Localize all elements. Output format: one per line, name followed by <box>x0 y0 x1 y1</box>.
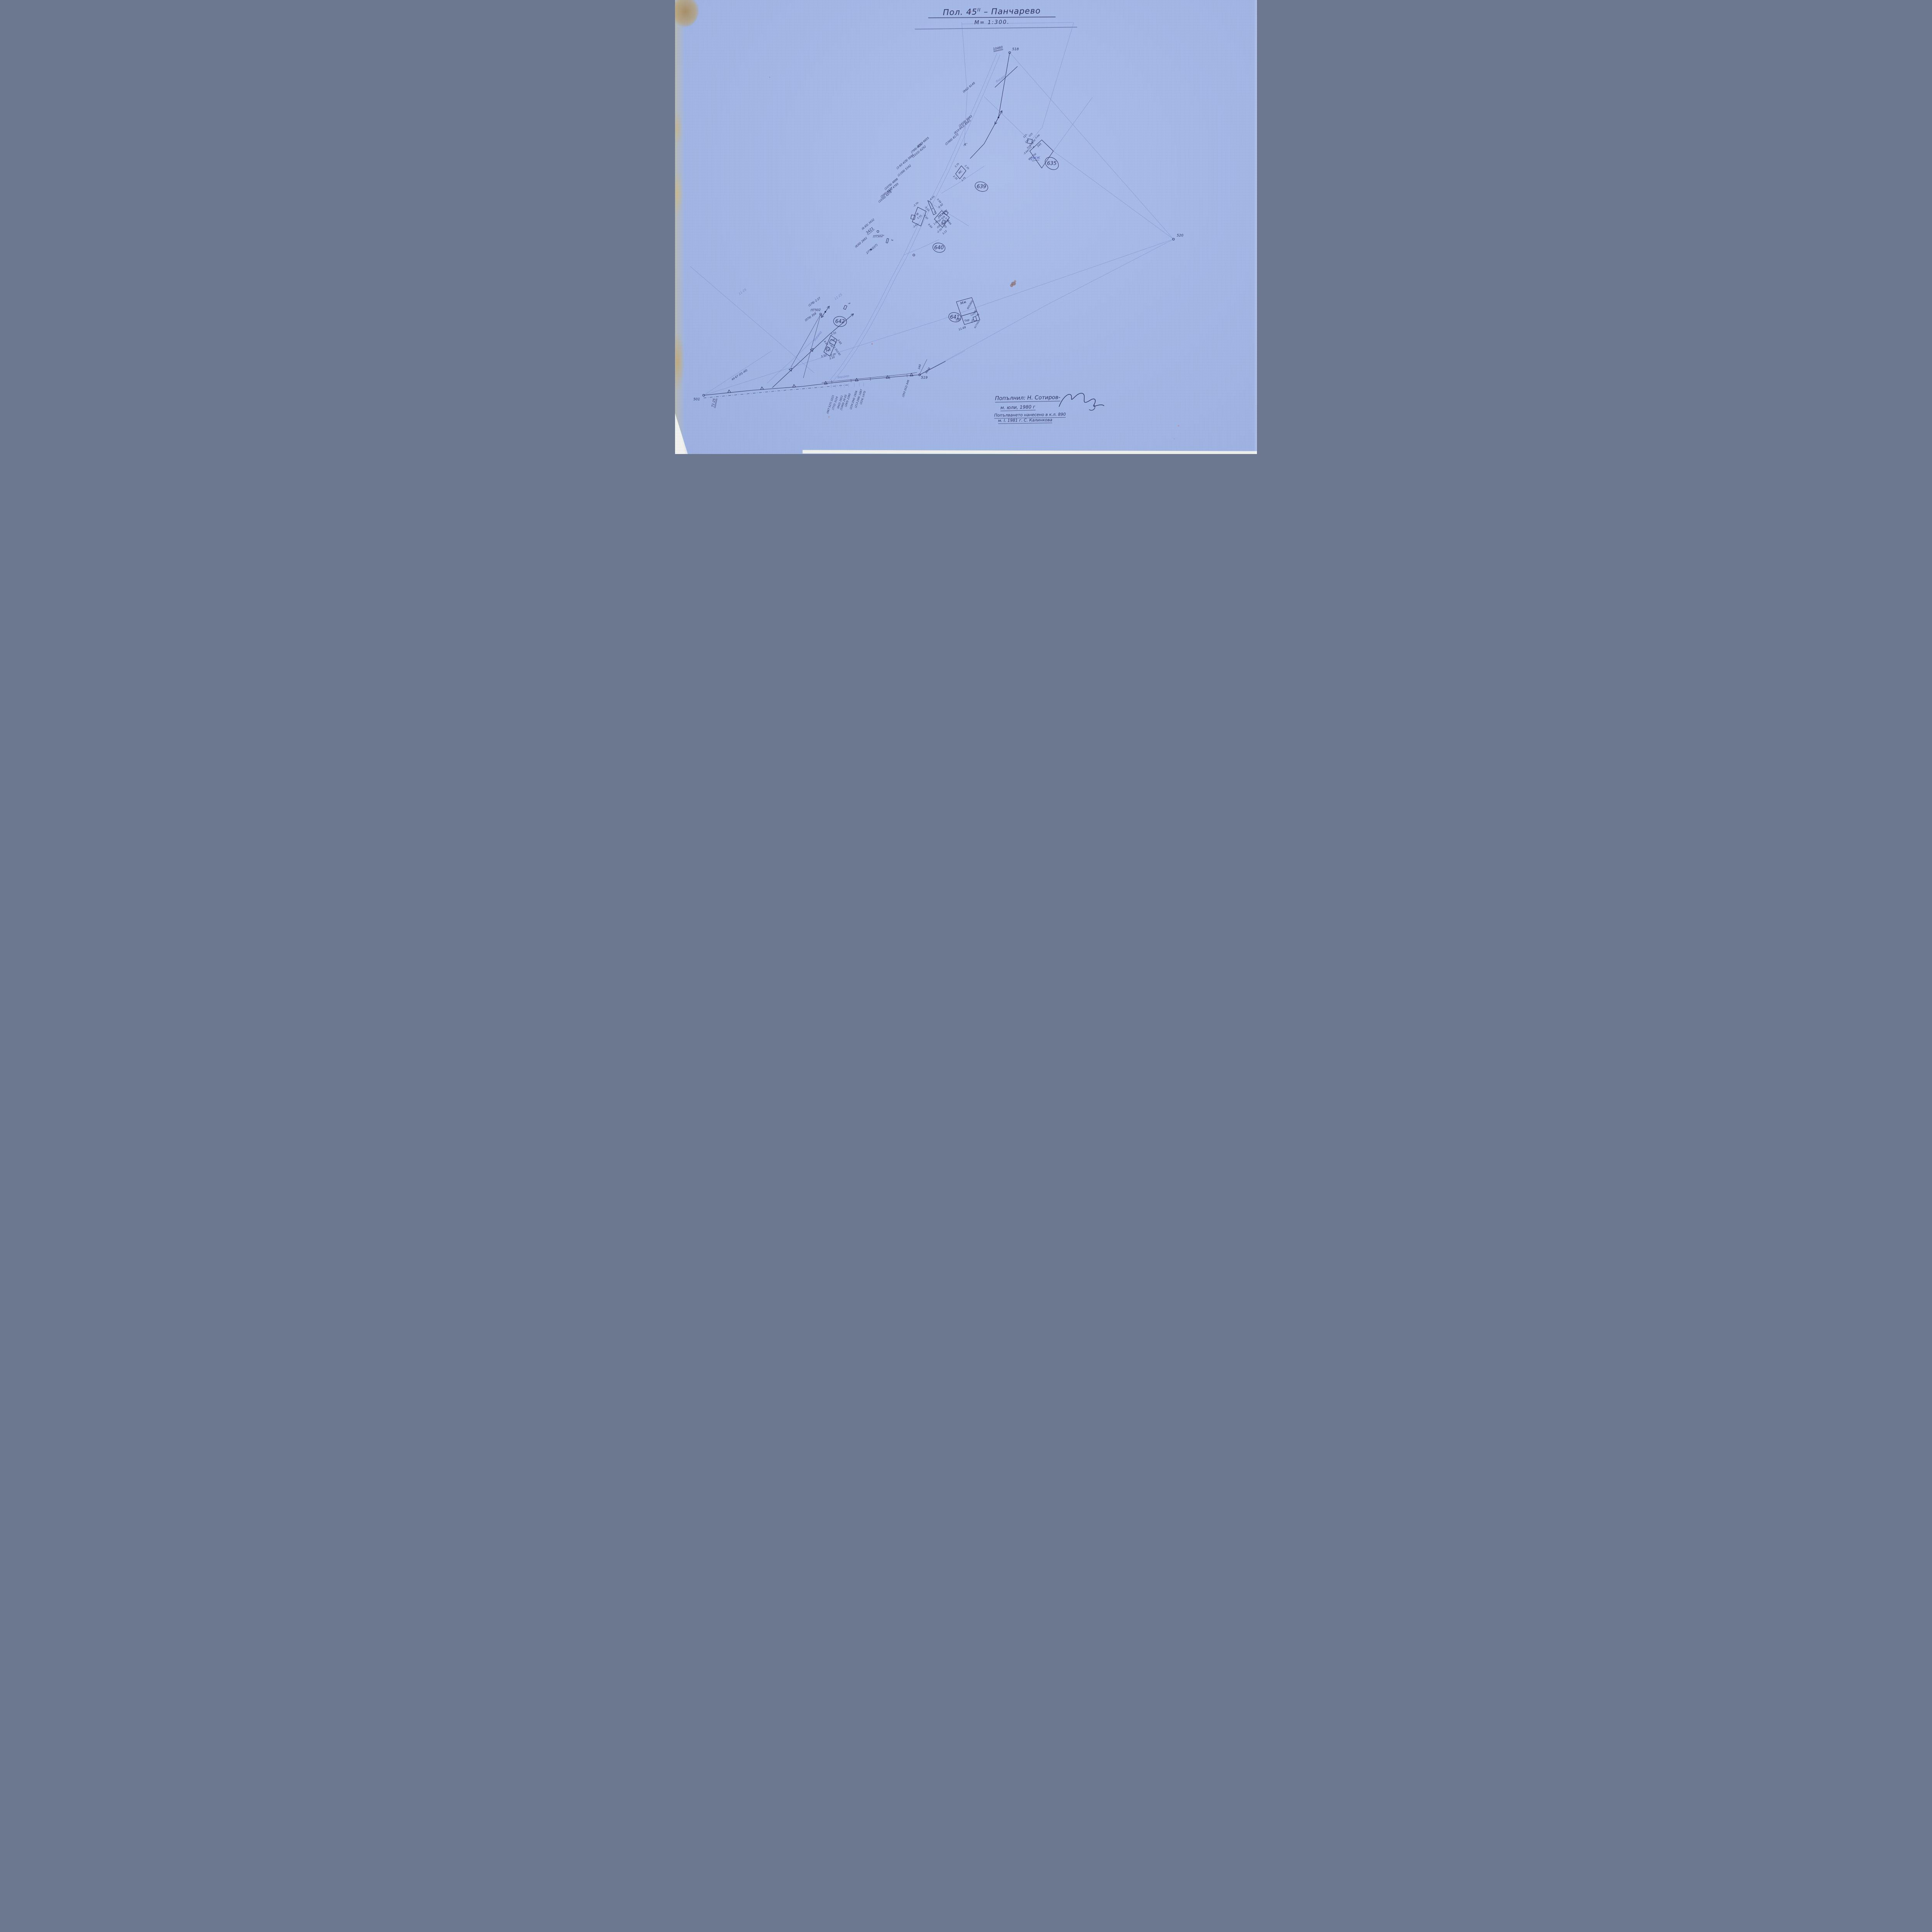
map-line-kerb-t5 <box>907 374 907 377</box>
map-label: Тер. <box>964 318 971 323</box>
map-label: 520 <box>1177 234 1183 238</box>
svg-text:×: × <box>934 211 935 214</box>
map-label: 0.56 <box>936 198 942 204</box>
svg-text:(630) 2692: (630) 2692 <box>854 236 868 248</box>
paper-stain <box>828 416 830 418</box>
svg-text:3421: 3421 <box>866 226 875 235</box>
map-line-traverse-ink <box>970 53 1010 158</box>
map-label: 3.15 <box>942 230 948 235</box>
svg-text:(293·352) 846: (293·352) 846 <box>901 379 910 398</box>
svg-text:733: 733 <box>943 209 948 214</box>
svg-text:3.65: 3.65 <box>837 339 842 345</box>
svg-text:5.00: 5.00 <box>828 342 834 348</box>
map-label: 4.92 <box>938 203 944 209</box>
bld-m-annex <box>911 215 915 219</box>
signature-flourish <box>1057 389 1107 413</box>
map-label: 3.65 <box>837 339 842 345</box>
map-label: (293·352) 846 <box>901 379 910 398</box>
pole-2 <box>844 305 847 310</box>
survey-triangle-mark <box>855 378 858 381</box>
map-label: 9846 <box>925 367 931 374</box>
svg-text:бордюр: бордюр <box>837 374 850 379</box>
svg-text:245: 245 <box>1036 142 1042 148</box>
survey-point-dot <box>825 311 826 313</box>
svg-text:501: 501 <box>693 398 700 401</box>
map-scale: М= 1:300. <box>915 18 1069 27</box>
map-label: 5.00 <box>828 342 834 348</box>
map-label: 11·25 <box>738 288 747 296</box>
svg-text:0.56: 0.56 <box>936 198 942 204</box>
map-label: 340 <box>917 364 922 370</box>
survey-point-circle <box>877 230 879 232</box>
map-label: 11·25 <box>834 293 843 301</box>
svg-text:635: 635 <box>1047 161 1057 167</box>
survey-triangle-mark <box>760 387 764 390</box>
map-label: 2774(037) <box>866 243 878 255</box>
map-line-diag-518-520 <box>1010 53 1173 239</box>
map-line-kerb-t4 <box>889 376 890 379</box>
map-label: (630) 2692 <box>854 236 868 248</box>
map-label: 617/502 <box>974 320 981 329</box>
title-part1: Пол. 45 <box>943 7 978 17</box>
svg-text:3.52: 3.52 <box>821 354 828 359</box>
svg-text:ПТ502: ПТ502 <box>811 308 821 312</box>
map-label: МС <box>958 170 963 175</box>
map-label: 518 <box>1012 48 1019 51</box>
survey-triangle-mark <box>728 390 731 393</box>
map-label: 501 <box>693 398 700 401</box>
map-label: 0.84 <box>946 220 952 226</box>
parcel-number-642: 642 <box>833 316 847 327</box>
svg-text:11.69: 11.69 <box>958 326 967 332</box>
svg-text:2774(037): 2774(037) <box>866 243 878 255</box>
svg-text:642: 642 <box>835 319 845 325</box>
svg-text:8.67: 8.67 <box>823 340 829 346</box>
map-label: 733 <box>943 209 948 214</box>
paper-stain <box>1010 284 1013 287</box>
svg-text:44·67 (01·40): 44·67 (01·40) <box>731 369 748 381</box>
svg-text:(079) 358: (079) 358 <box>804 312 817 322</box>
map-line-d635-520 <box>1053 151 1173 239</box>
title-sup: II <box>977 7 981 12</box>
map-label: 10460 <box>993 46 1003 52</box>
pole-1 <box>886 238 889 243</box>
map-label: ПТ502ᵃ <box>873 234 884 239</box>
svg-text:520: 520 <box>1177 234 1183 238</box>
svg-text:519: 519 <box>921 376 927 380</box>
paper-stain <box>1014 280 1016 282</box>
map-label: -3.04- <box>1023 149 1030 155</box>
map-label: -3.70- <box>913 201 920 207</box>
map-label: бордюр <box>813 330 823 342</box>
map-label: (079) 358 <box>804 312 817 322</box>
svg-text:6.65: 6.65 <box>927 223 933 229</box>
map-label: × <box>934 211 935 214</box>
paper-stain <box>871 343 873 345</box>
svg-text:Мж: Мж <box>960 300 967 306</box>
map-line-d635-up <box>1053 97 1092 151</box>
note-entered: Попълването нанесено в к.л. 890 <box>994 412 1066 419</box>
svg-text:71·25: 71·25 <box>711 398 716 407</box>
svg-text:з: з <box>847 302 851 305</box>
paper-stain <box>1178 425 1179 427</box>
map-line-ne-519 <box>920 361 946 375</box>
map-line-line-4467 <box>704 351 772 395</box>
map-line-left-diag <box>690 267 814 373</box>
map-title: Пол. 45II – Панчарево М= 1:300. <box>915 6 1070 30</box>
map-line-pt502-branch2 <box>803 314 821 378</box>
surveyor-name: Попълнил: Н. Сотиров- <box>995 395 1061 403</box>
note-entered-date: м. I. 1981 г. С. Калинкова <box>998 418 1052 424</box>
map-label: Мж <box>960 300 967 306</box>
map-line-ne-519-f <box>946 351 965 361</box>
svg-text:-3.04-: -3.04- <box>1023 149 1030 155</box>
svg-text:2.82: 2.82 <box>836 350 842 356</box>
map-label: 3.75 <box>954 163 960 168</box>
map-label: 519 <box>921 376 927 380</box>
map-line-road-west-b <box>832 55 1000 382</box>
svg-text:640: 640 <box>934 245 944 251</box>
svg-text:11·25: 11·25 <box>834 293 843 301</box>
map-label: -125 <box>1028 133 1034 138</box>
map-line-border-south <box>704 385 849 398</box>
map-label: × <box>931 207 933 210</box>
map-label: (942) 9148 <box>962 82 976 94</box>
paper-stain <box>769 77 770 78</box>
svg-text:з: з <box>891 239 894 241</box>
svg-text:3.55: 3.55 <box>830 331 837 336</box>
map-label: 3421 <box>866 226 875 235</box>
map-label: 8.67 <box>823 340 829 346</box>
svg-text:-3.70-: -3.70- <box>913 201 920 207</box>
map-line-cross-pencil <box>984 97 1029 140</box>
map-label: 3.55 <box>830 331 837 336</box>
map-label: з <box>891 239 894 241</box>
map-label: з <box>847 302 851 305</box>
svg-text:617/502: 617/502 <box>974 320 981 329</box>
map-label: 2.82 <box>836 350 842 356</box>
map-line-diag-519-520 <box>920 239 1173 375</box>
svg-text:(942) 9148: (942) 9148 <box>962 82 976 94</box>
svg-text:11·25: 11·25 <box>738 288 747 296</box>
map-label: (178) 2·27 <box>808 296 821 307</box>
map-label: 2МЖ <box>1030 156 1041 162</box>
parcel-number-635: 635 <box>1043 155 1061 172</box>
map-label: 11.69 <box>958 326 967 332</box>
svg-text:-3.04-: -3.04- <box>1034 133 1041 140</box>
map-label: 245 <box>1036 142 1042 148</box>
svg-text:×: × <box>931 207 933 210</box>
signature-date: м. юли, 1980 г <box>1000 404 1036 411</box>
map-label: 3.75 <box>961 177 967 182</box>
map-line-kerb-t3 <box>870 378 871 381</box>
signature-line-surveyor: Попълнил: Н. Сотиров- <box>995 395 1061 403</box>
map-line-road-west-a <box>830 53 997 381</box>
map-label: -3.04- <box>1034 133 1041 140</box>
svg-text:9846: 9846 <box>925 367 931 374</box>
map-label: 6.65 <box>927 223 933 229</box>
map-label: бордюр <box>837 374 850 379</box>
survey-point-dot <box>998 117 999 118</box>
title-part2: – Панчарево <box>981 6 1041 17</box>
map-line-diag-520-501 <box>704 239 1173 395</box>
svg-text:3.15: 3.15 <box>942 230 948 235</box>
map-line-branch-640 <box>904 240 939 255</box>
parcel-number-640: 640 <box>932 242 946 253</box>
svg-text:4.92: 4.92 <box>938 203 944 209</box>
svg-text:145: 145 <box>975 313 980 317</box>
svg-text:МС: МС <box>958 170 963 175</box>
svg-text:3.75: 3.75 <box>961 177 967 182</box>
svg-text:бордюр: бордюр <box>813 330 823 342</box>
map-label: А″ <box>963 143 968 147</box>
survey-triangle-mark <box>810 347 815 352</box>
survey-map-canvas: 639635640641642 10460518бордюрА″(942) 91… <box>675 0 1257 454</box>
svg-text:(178) 2·27: (178) 2·27 <box>808 296 821 307</box>
map-line-quad-right <box>1031 22 1074 141</box>
map-label: ПТ502 <box>811 308 821 312</box>
paper-stain <box>1173 438 1175 439</box>
svg-text:805/600: 805/600 <box>966 300 974 310</box>
map-label: 71·25 <box>711 398 717 408</box>
scanned-survey-sheet: 639635640641642 10460518бордюрА″(942) 91… <box>675 0 1257 454</box>
scan-edge-right <box>1254 0 1257 454</box>
svg-text:639: 639 <box>977 184 986 190</box>
map-label: 3.52 <box>821 354 828 359</box>
map-label: 145 <box>975 313 980 317</box>
svg-text:340: 340 <box>917 364 922 370</box>
svg-text:ПТ502ᵃ: ПТ502ᵃ <box>873 234 884 239</box>
map-label: 805/600 <box>966 300 974 310</box>
map-label: 44·67 (01·40) <box>731 369 748 381</box>
svg-text:0.84: 0.84 <box>946 220 952 226</box>
svg-text:518: 518 <box>1012 48 1019 51</box>
svg-text:-125: -125 <box>1028 133 1034 138</box>
svg-text:Тер.: Тер. <box>964 318 971 323</box>
survey-point-circle <box>913 254 915 256</box>
parcel-number-639: 639 <box>974 180 989 193</box>
svg-text:3.75: 3.75 <box>954 163 960 168</box>
svg-text:А″: А″ <box>963 143 968 147</box>
